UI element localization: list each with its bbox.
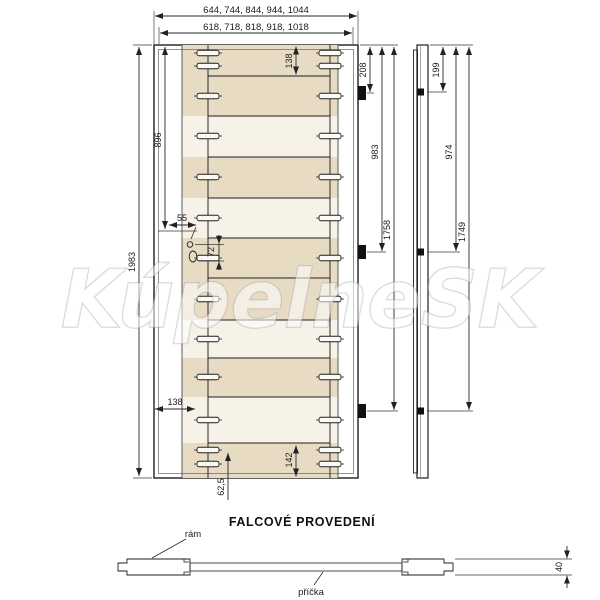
hinge-bottom-edge-dim: 1749 — [457, 222, 467, 242]
thickness-dim: 40 — [554, 562, 564, 572]
hinge-bottom-front-dim: 1758 — [382, 220, 392, 240]
technical-drawing-page: 644, 744, 844, 944, 1044 618, 718, 818, … — [0, 0, 600, 600]
hinges-front — [358, 86, 367, 418]
door-dimension-drawing: 644, 744, 844, 944, 1044 618, 718, 818, … — [0, 0, 600, 600]
frame-leader — [152, 539, 186, 558]
section-groove-notches — [184, 559, 408, 575]
inner-width-dim: 618, 718, 818, 918, 1018 — [203, 22, 309, 33]
hinge-top-edge-dim: 199 — [431, 62, 441, 77]
drawing-title: FALCOVÉ PROVEDENÍ — [229, 514, 375, 529]
top-rail-dim: 138 — [284, 53, 294, 68]
rail-label: příčka — [298, 587, 325, 598]
section-frame-right — [402, 559, 453, 575]
outer-width-dim: 644, 744, 844, 944, 1044 — [203, 5, 309, 16]
lock-edge-offset-dim: 55 — [177, 213, 187, 223]
door-cross-section: rám příčka 40 — [118, 529, 564, 598]
watermark-text: KúpelneSK — [61, 253, 544, 346]
hinge-top-front-dim: 208 — [358, 62, 368, 77]
hinge-middle-front-dim: 983 — [370, 144, 380, 159]
section-frame-left — [118, 559, 190, 575]
rail-leader — [314, 572, 323, 585]
frame-label: rám — [185, 529, 201, 540]
hinge-middle-edge-dim: 974 — [444, 144, 454, 159]
section-rail — [190, 563, 402, 571]
bottom-rail-dim: 142 — [284, 452, 294, 467]
bottom-slot-offset-dim: 62,5 — [216, 478, 226, 496]
bottom-slot-inset-dim: 138 — [167, 397, 182, 407]
handle-height-dim: 896 — [153, 132, 163, 147]
